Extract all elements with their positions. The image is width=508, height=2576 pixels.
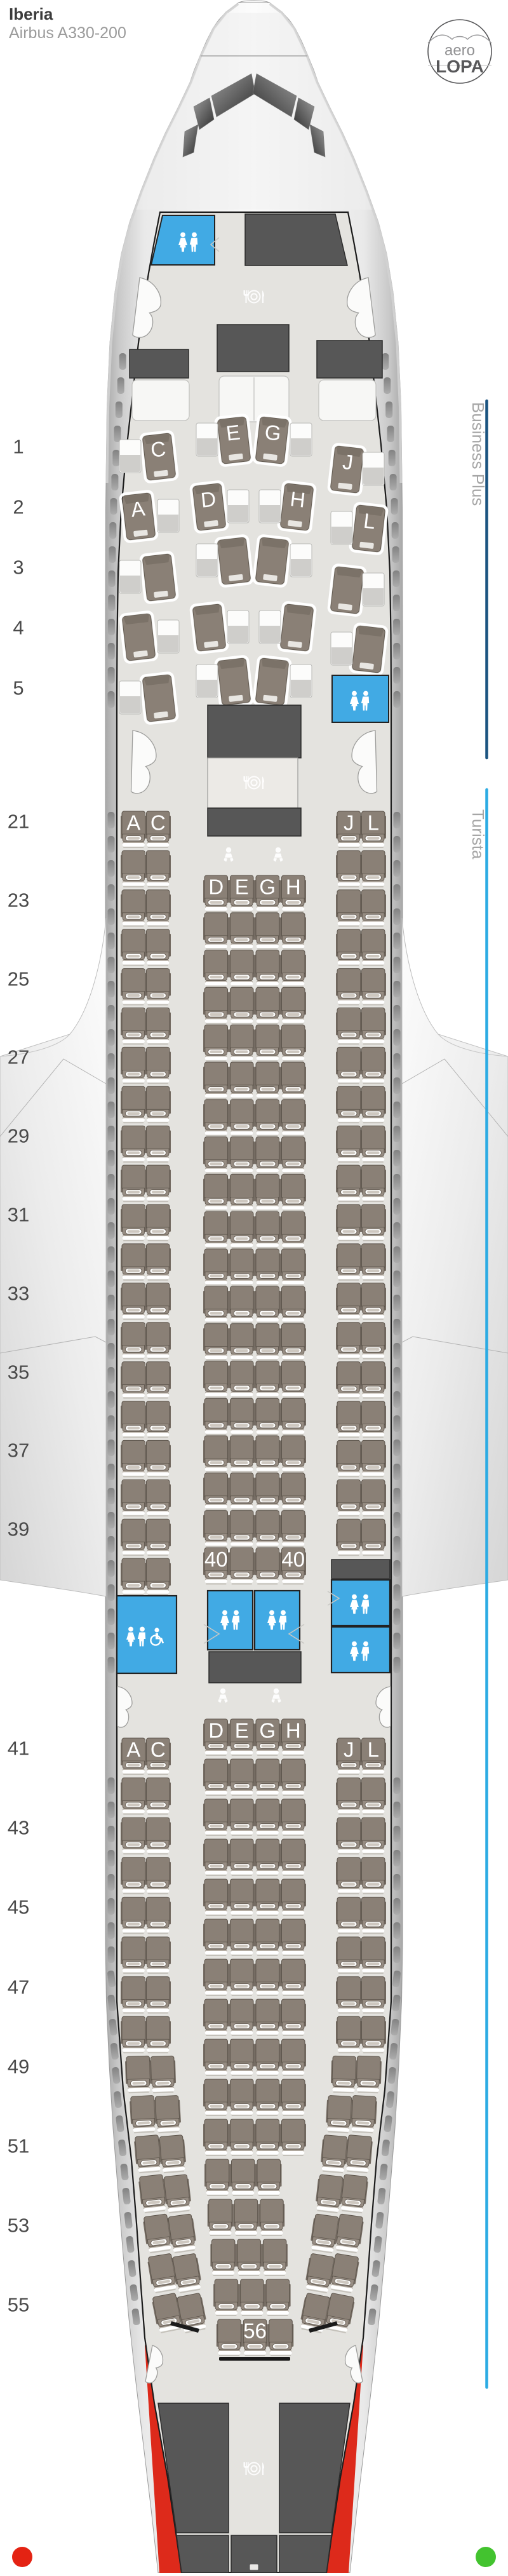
svg-text:Airbus A330-200: Airbus A330-200 (9, 24, 126, 42)
svg-text:G: G (259, 1719, 276, 1743)
svg-text:45: 45 (8, 1896, 29, 1919)
svg-text:23: 23 (8, 889, 29, 912)
svg-text:27: 27 (8, 1046, 29, 1069)
svg-text:53: 53 (8, 2215, 29, 2237)
svg-text:LOPA: LOPA (436, 57, 484, 76)
svg-text:3: 3 (13, 556, 23, 579)
svg-text:L: L (368, 1738, 379, 1762)
svg-text:2: 2 (13, 496, 23, 518)
svg-text:29: 29 (8, 1125, 29, 1147)
svg-text:41: 41 (8, 1737, 29, 1760)
svg-text:E: E (235, 1719, 249, 1743)
svg-text:C: C (150, 1738, 166, 1762)
svg-text:33: 33 (8, 1283, 29, 1305)
svg-text:40: 40 (204, 1548, 228, 1571)
svg-text:D: D (199, 487, 217, 511)
svg-text:49: 49 (8, 2056, 29, 2078)
svg-text:E: E (235, 875, 249, 899)
svg-text:H: H (286, 1719, 301, 1743)
svg-text:G: G (259, 875, 276, 899)
svg-text:E: E (225, 420, 241, 445)
svg-text:H: H (289, 487, 307, 511)
svg-text:D: D (208, 1719, 224, 1743)
svg-text:D: D (208, 875, 224, 899)
svg-text:C: C (149, 436, 167, 461)
svg-text:1: 1 (13, 436, 23, 458)
svg-text:55: 55 (8, 2294, 29, 2316)
svg-text:35: 35 (8, 1361, 29, 1384)
svg-text:4: 4 (13, 617, 23, 639)
svg-text:L: L (368, 811, 379, 835)
svg-text:47: 47 (8, 1976, 29, 1999)
svg-text:H: H (286, 875, 301, 899)
svg-text:Iberia: Iberia (9, 4, 53, 24)
svg-text:5: 5 (13, 677, 23, 699)
svg-text:40: 40 (281, 1548, 305, 1571)
svg-text:A: A (126, 811, 140, 835)
svg-text:J: J (344, 811, 354, 835)
svg-text:C: C (150, 811, 166, 835)
svg-text:Business Plus: Business Plus (469, 402, 488, 506)
svg-text:A: A (130, 496, 146, 521)
svg-text:J: J (344, 1738, 354, 1762)
svg-text:G: G (264, 420, 283, 445)
svg-text:21: 21 (8, 811, 29, 833)
svg-text:43: 43 (8, 1817, 29, 1839)
svg-text:31: 31 (8, 1204, 29, 1226)
svg-text:37: 37 (8, 1440, 29, 1462)
svg-text:39: 39 (8, 1518, 29, 1541)
svg-text:25: 25 (8, 968, 29, 990)
svg-text:Turista: Turista (469, 809, 488, 860)
svg-text:51: 51 (8, 2135, 29, 2157)
svg-text:56: 56 (243, 2319, 267, 2343)
svg-text:A: A (126, 1738, 140, 1762)
